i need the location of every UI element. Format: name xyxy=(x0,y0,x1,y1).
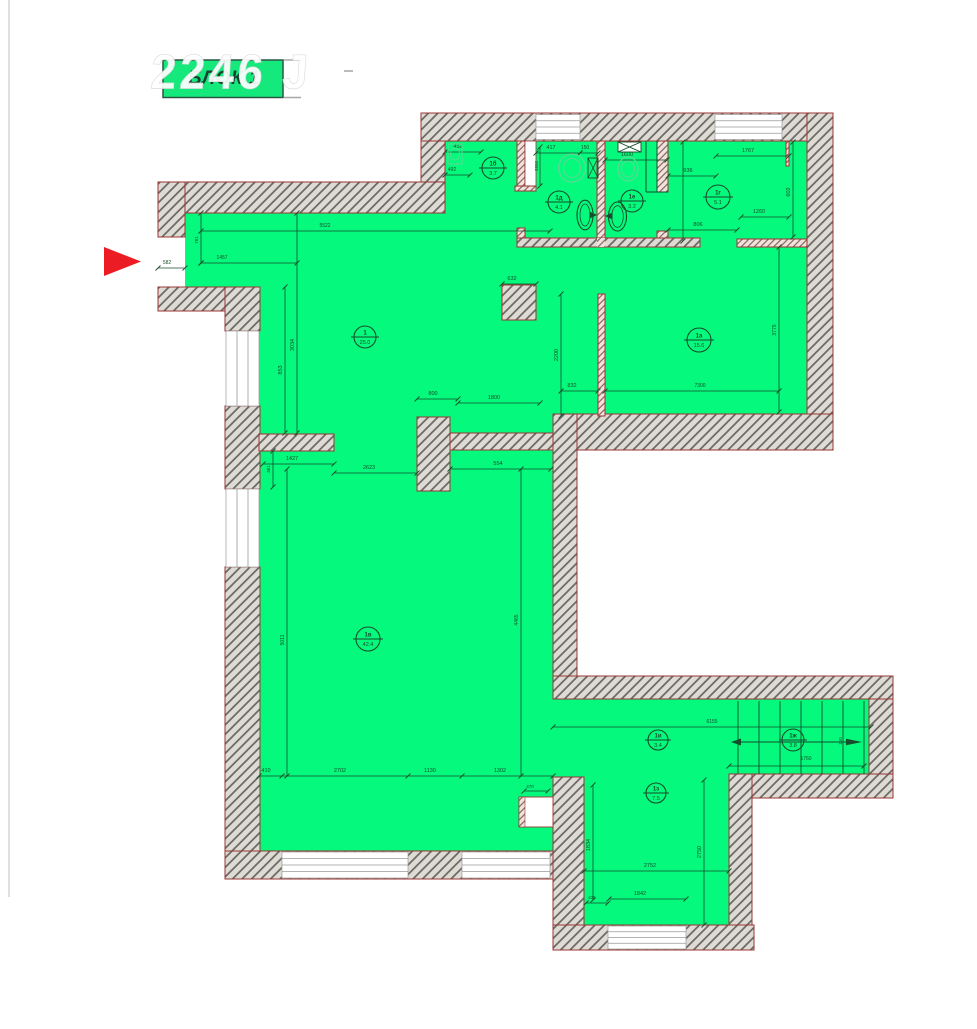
svg-text:1и: 1и xyxy=(654,734,661,740)
svg-text:2200: 2200 xyxy=(554,349,560,361)
svg-text:3.8: 3.8 xyxy=(789,743,797,749)
svg-text:806: 806 xyxy=(693,222,702,228)
svg-text:6155: 6155 xyxy=(706,719,717,725)
svg-text:853: 853 xyxy=(278,365,284,374)
svg-text:582: 582 xyxy=(163,260,172,266)
svg-text:936: 936 xyxy=(683,168,692,174)
svg-text:25.0: 25.0 xyxy=(360,340,371,346)
svg-text:1ж: 1ж xyxy=(789,734,797,740)
svg-text:417: 417 xyxy=(546,145,555,151)
svg-text:3.4: 3.4 xyxy=(654,743,662,749)
svg-text:1767: 1767 xyxy=(742,148,754,154)
svg-text:2752: 2752 xyxy=(644,863,656,869)
svg-text:470: 470 xyxy=(526,784,534,789)
svg-text:4465: 4465 xyxy=(514,614,520,625)
svg-text:1760: 1760 xyxy=(800,756,811,762)
svg-text:602: 602 xyxy=(786,187,792,196)
svg-text:2623: 2623 xyxy=(363,465,375,471)
svg-text:1д: 1д xyxy=(555,196,562,202)
svg-text:3775: 3775 xyxy=(772,324,778,335)
svg-text:7.5: 7.5 xyxy=(652,796,660,802)
svg-text:832: 832 xyxy=(567,383,576,389)
svg-text:2702: 2702 xyxy=(334,768,346,774)
svg-text:2750: 2750 xyxy=(697,846,703,858)
svg-text:3.2: 3.2 xyxy=(628,204,636,210)
svg-text:150: 150 xyxy=(581,145,590,151)
svg-text:1457: 1457 xyxy=(216,255,227,261)
svg-text:1з: 1з xyxy=(653,787,659,793)
svg-text:5011: 5011 xyxy=(280,634,286,645)
svg-text:1302: 1302 xyxy=(494,768,506,774)
svg-text:2246 Ј: 2246 Ј xyxy=(149,45,313,100)
svg-text:1в: 1в xyxy=(364,633,371,639)
svg-text:7300: 7300 xyxy=(694,383,705,389)
svg-text:4.1: 4.1 xyxy=(555,205,563,211)
svg-text:492: 492 xyxy=(448,167,457,173)
svg-text:554: 554 xyxy=(493,461,502,467)
svg-text:1б: 1б xyxy=(489,161,496,168)
svg-text:1г: 1г xyxy=(715,191,721,197)
svg-text:1800: 1800 xyxy=(488,395,500,401)
svg-text:42.4: 42.4 xyxy=(363,642,374,648)
svg-text:761: 761 xyxy=(194,236,199,244)
svg-text:1427: 1427 xyxy=(286,456,298,462)
svg-text:1е: 1е xyxy=(629,195,636,201)
svg-text:1834: 1834 xyxy=(586,839,592,851)
svg-text:1260: 1260 xyxy=(753,209,765,215)
svg-text:2202: 2202 xyxy=(534,160,539,171)
svg-text:5522: 5522 xyxy=(319,223,330,229)
svg-text:15.6: 15.6 xyxy=(694,343,705,349)
svg-text:1842: 1842 xyxy=(634,891,646,897)
svg-text:1130: 1130 xyxy=(424,768,436,774)
svg-text:3.7: 3.7 xyxy=(489,171,497,177)
svg-text:3034: 3034 xyxy=(290,339,296,351)
svg-text:800: 800 xyxy=(428,391,437,397)
svg-text:150: 150 xyxy=(838,737,843,745)
svg-text:410: 410 xyxy=(261,768,270,774)
svg-text:361: 361 xyxy=(266,465,271,473)
svg-text:632: 632 xyxy=(507,276,516,282)
svg-text:1а: 1а xyxy=(696,334,703,340)
svg-text:5.1: 5.1 xyxy=(714,200,722,206)
